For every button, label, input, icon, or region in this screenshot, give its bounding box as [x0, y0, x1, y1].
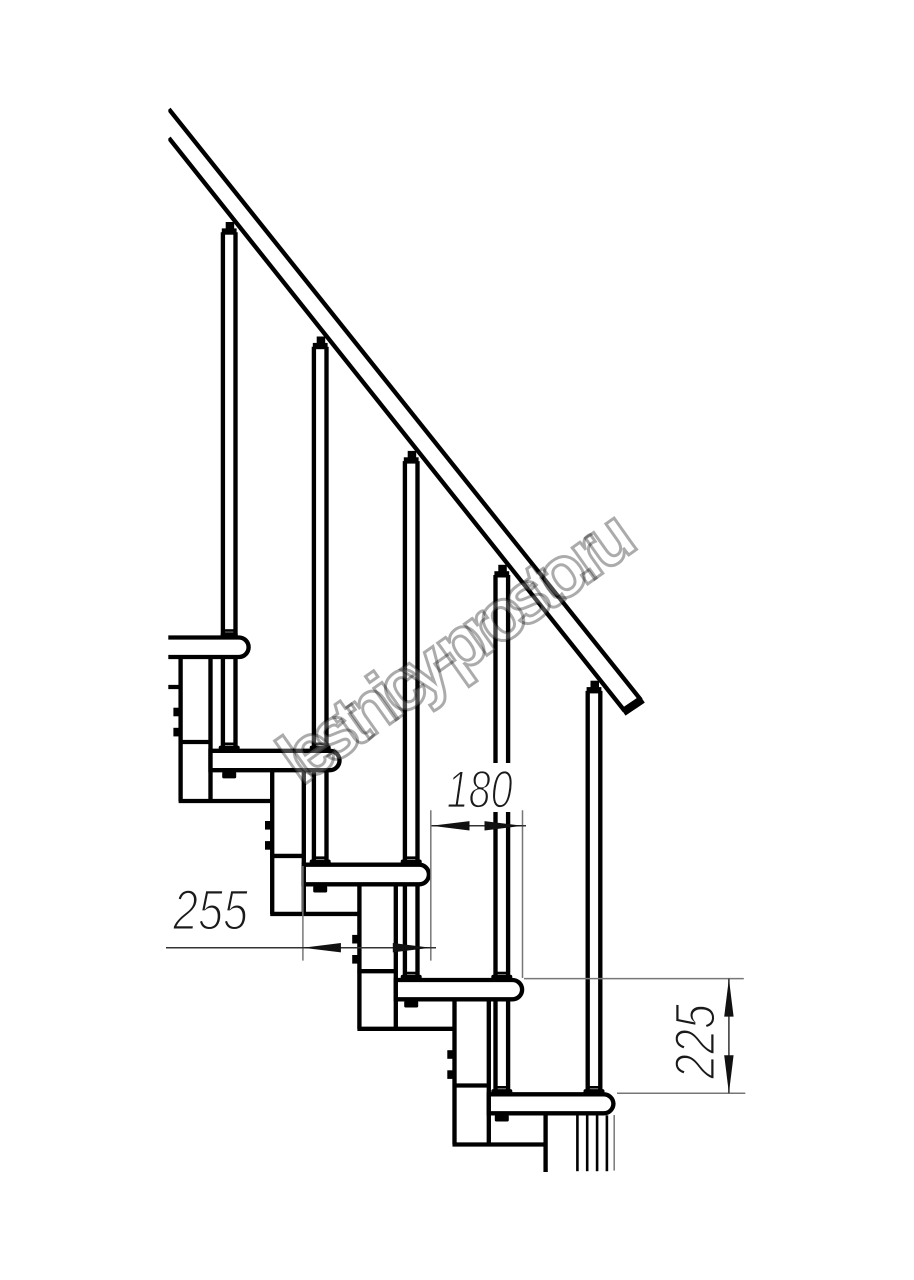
svg-text:225: 225	[664, 1004, 728, 1080]
svg-text:255: 255	[172, 878, 248, 942]
svg-text:180: 180	[447, 760, 513, 819]
